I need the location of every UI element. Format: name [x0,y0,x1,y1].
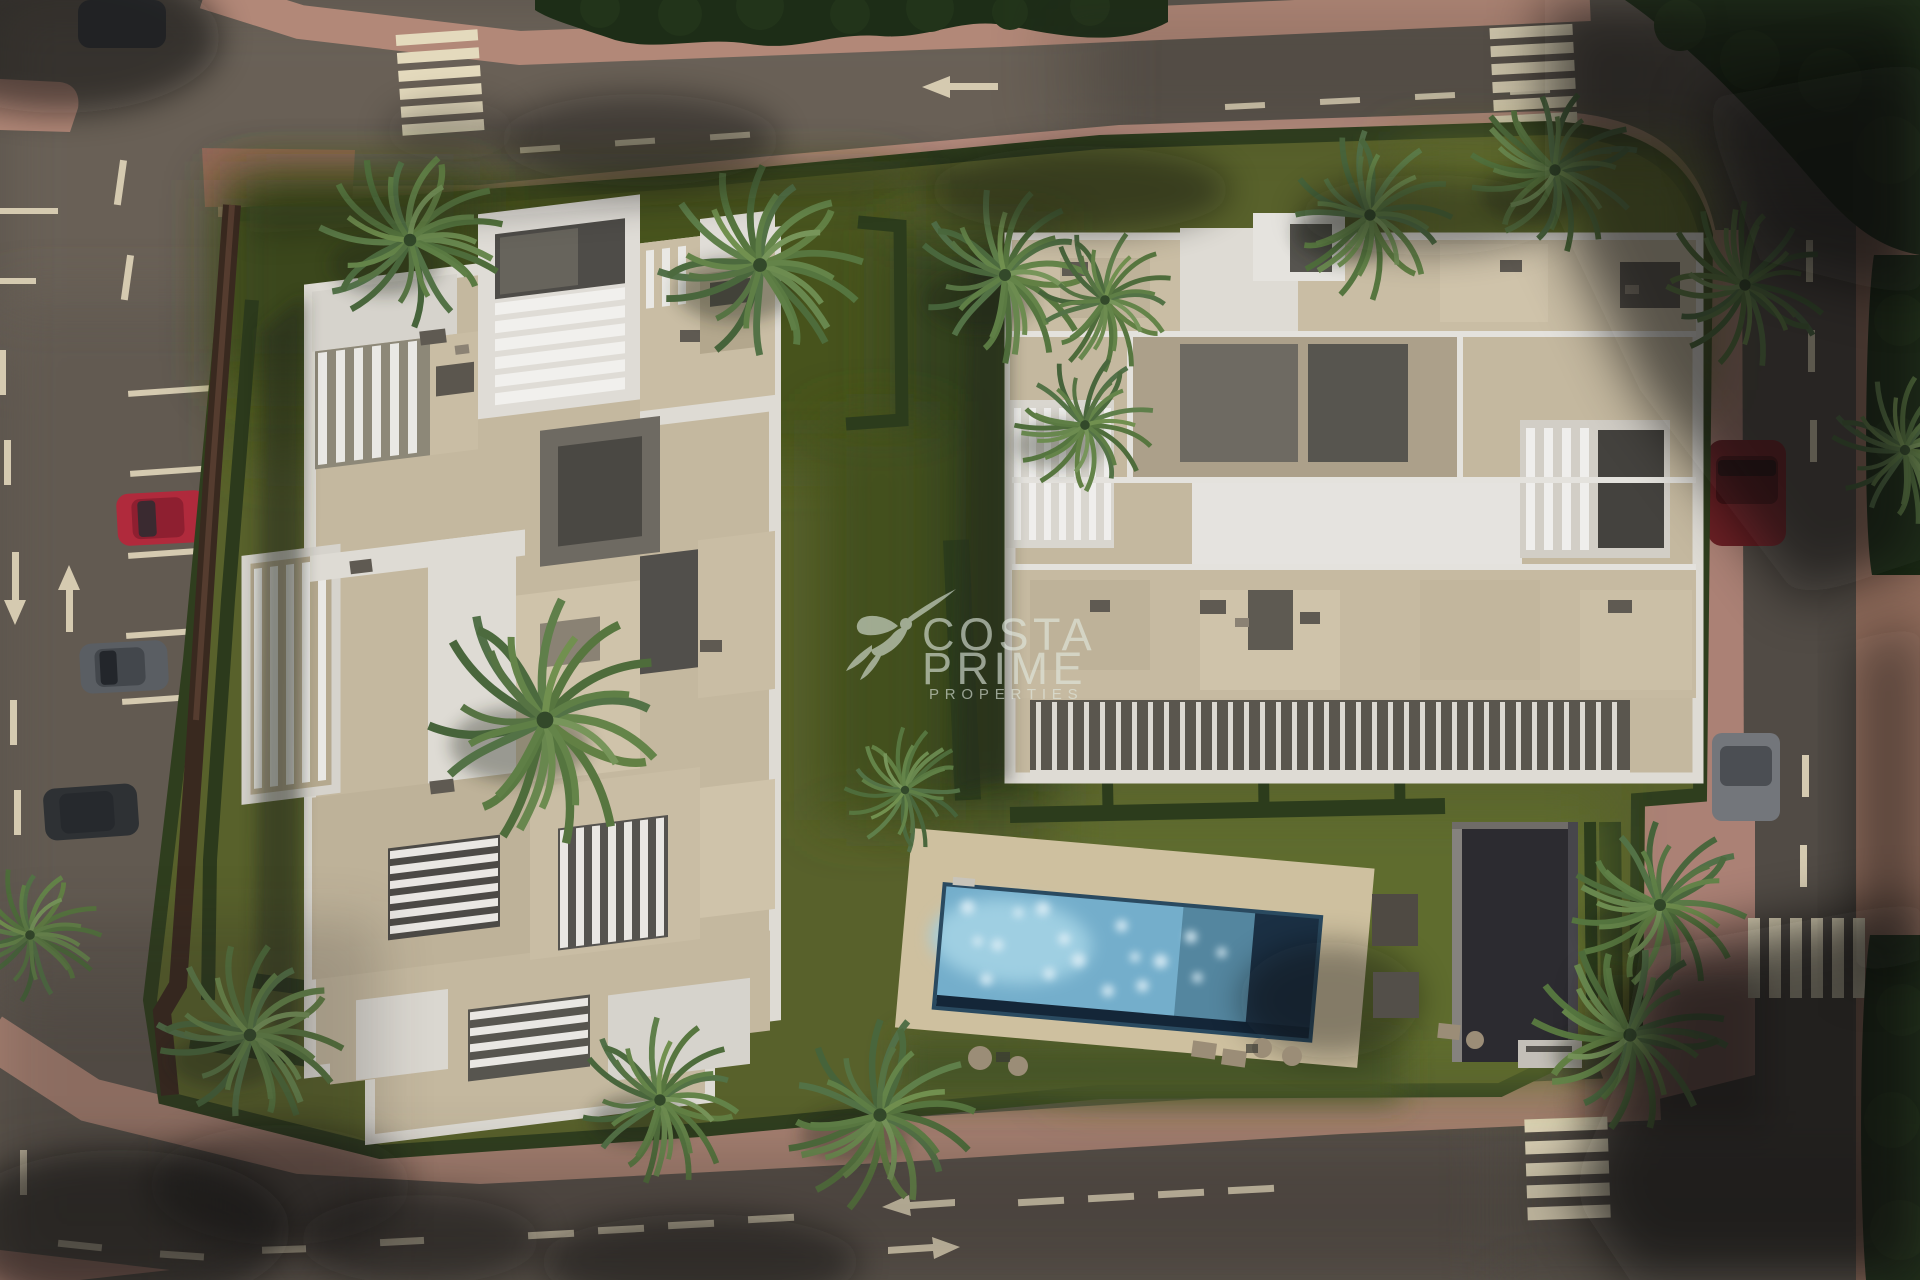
svg-text:PROPERTIES: PROPERTIES [929,686,1083,703]
